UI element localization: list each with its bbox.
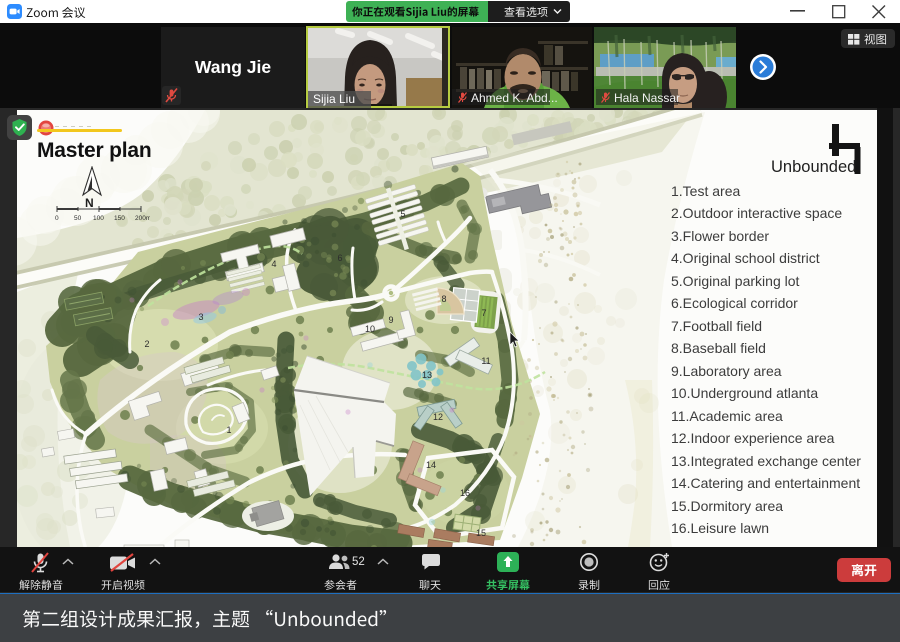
svg-text:100: 100 [93, 215, 104, 222]
svg-text:13: 13 [422, 370, 432, 380]
svg-text:3: 3 [198, 312, 203, 322]
svg-text:7: 7 [481, 308, 486, 318]
svg-text:1: 1 [226, 425, 231, 435]
svg-text:9: 9 [388, 315, 393, 325]
svg-text:50: 50 [74, 215, 82, 222]
svg-text:16: 16 [460, 488, 470, 498]
svg-text:0: 0 [55, 215, 59, 222]
svg-text:5: 5 [400, 209, 405, 219]
svg-text:150: 150 [114, 215, 125, 222]
svg-text:4: 4 [271, 259, 276, 269]
svg-text:6: 6 [337, 253, 342, 263]
svg-text:15: 15 [476, 528, 486, 538]
svg-text:2: 2 [144, 339, 149, 349]
svg-text:12: 12 [433, 412, 443, 422]
svg-text:8: 8 [441, 294, 446, 304]
svg-text:11: 11 [481, 356, 490, 366]
svg-text:200m: 200m [135, 215, 150, 222]
svg-text:10: 10 [365, 324, 375, 334]
svg-text:14: 14 [426, 460, 436, 470]
